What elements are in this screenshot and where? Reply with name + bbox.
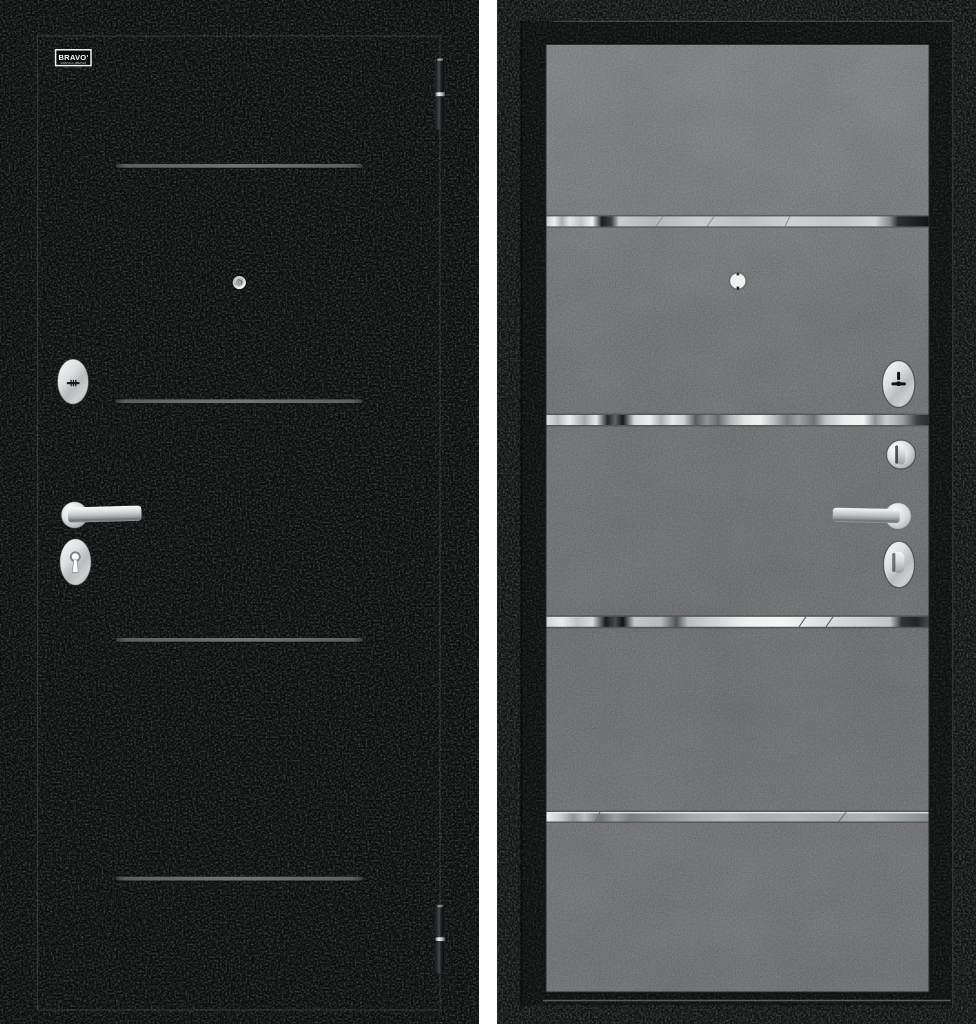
svg-text:ФАБРИКА ДВЕРЕЙ: ФАБРИКА ДВЕРЕЙ bbox=[61, 61, 87, 65]
svg-text:BRAVO': BRAVO' bbox=[58, 53, 88, 62]
